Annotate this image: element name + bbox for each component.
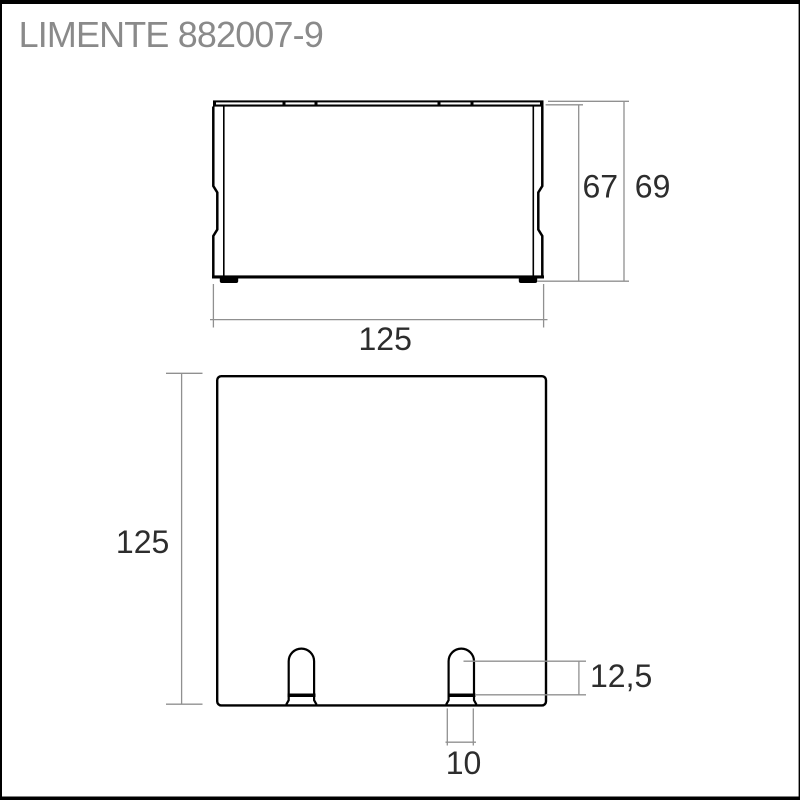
svg-text:10: 10 (446, 745, 482, 781)
svg-text:125: 125 (116, 524, 169, 560)
svg-text:69: 69 (635, 169, 671, 205)
svg-text:12,5: 12,5 (590, 658, 652, 694)
svg-text:125: 125 (359, 321, 412, 357)
svg-text:LIMENTE 882007-9: LIMENTE 882007-9 (19, 15, 323, 55)
svg-text:67: 67 (583, 169, 619, 205)
